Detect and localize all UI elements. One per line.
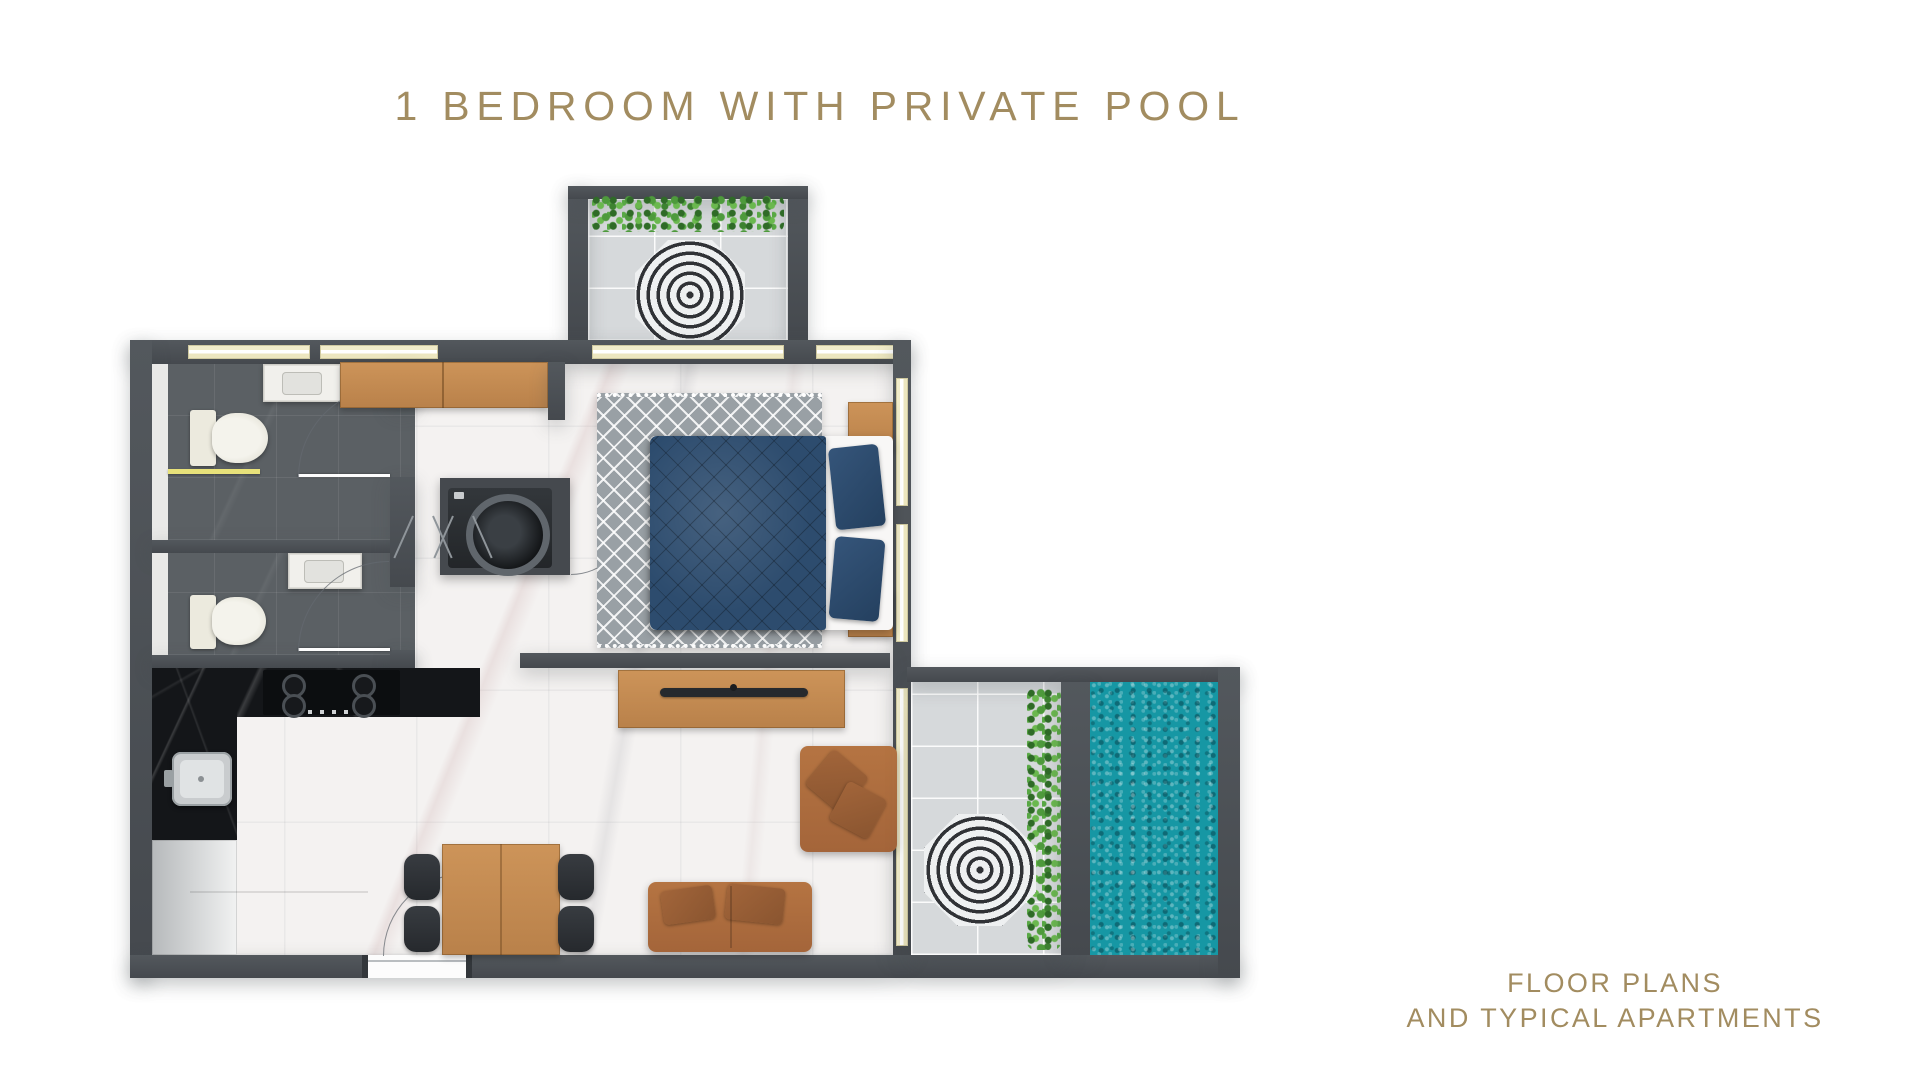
balcony-hedge-icon (592, 195, 784, 232)
bed-duvet (650, 436, 826, 630)
wardrobe-end-column (548, 362, 565, 420)
partition-wall (520, 653, 890, 668)
door-jamb (362, 955, 368, 978)
wall-right (1218, 667, 1240, 978)
sofa-pillow (724, 883, 785, 925)
foyer-step-line (190, 891, 368, 893)
dining-chair (404, 906, 440, 952)
window-strip (896, 378, 908, 506)
dining-chair (558, 906, 594, 952)
sink-faucet (164, 770, 173, 787)
bathroom-wall-segment (390, 477, 415, 587)
floor-plan (130, 186, 1240, 978)
sliding-glass-door (896, 688, 908, 946)
balcony-umbrella-icon (635, 240, 745, 350)
window-strip (188, 345, 310, 359)
cooktop-knobs (308, 710, 354, 714)
door-jamb (466, 955, 472, 978)
dining-chair (404, 854, 440, 900)
burner (282, 694, 306, 718)
shower-glass-screen (168, 469, 260, 474)
bathroom-bottom-wall (152, 655, 415, 668)
bathroom-wall-segment (390, 650, 415, 668)
toilet-bowl (212, 597, 266, 645)
terrace-top-wall (907, 667, 1240, 682)
sofa-pillow (660, 885, 716, 926)
pool-water (1090, 682, 1218, 955)
wall-bottom (130, 955, 1240, 978)
footer-line-1: FLOOR PLANS (1360, 966, 1870, 1001)
pool-edge-wall (1061, 682, 1090, 955)
entrance-opening (367, 955, 467, 978)
tv-console (618, 670, 845, 728)
balcony-sliding-door (592, 345, 784, 359)
bathroom-divider-wall (152, 540, 415, 553)
wall-left (130, 340, 152, 978)
vanity-basin (282, 372, 322, 395)
window-strip (816, 345, 902, 359)
table-seam (500, 844, 502, 955)
sink-drain (198, 776, 204, 782)
sofa-seat-line (730, 886, 732, 948)
footer-caption: FLOOR PLANS AND TYPICAL APARTMENTS (1360, 966, 1870, 1036)
wardrobe-seam (442, 362, 444, 408)
toilet-bowl (212, 413, 268, 463)
terrace-hedge-icon (1027, 688, 1061, 950)
burner (352, 694, 376, 718)
wardrobe (340, 362, 548, 408)
balcony-wall-left (568, 186, 588, 341)
bathroom-1-wall-strip (152, 364, 168, 540)
washing-machine-door (466, 494, 550, 576)
entrance-threshold (367, 960, 467, 962)
balcony-wall-right (788, 186, 808, 341)
footer-line-2: AND TYPICAL APARTMENTS (1360, 1001, 1870, 1036)
bathroom-2-wall-strip (152, 553, 168, 655)
tv-mount (730, 684, 737, 691)
window-strip (320, 345, 438, 359)
page-title: 1 BEDROOM WITH PRIVATE POOL (280, 83, 1360, 130)
kitchen-cabinet (152, 840, 237, 955)
bed-pillow (828, 444, 886, 531)
window-strip (896, 524, 908, 642)
bed-pillow (829, 536, 886, 622)
washing-machine-panel (454, 492, 464, 499)
dining-chair (558, 854, 594, 900)
